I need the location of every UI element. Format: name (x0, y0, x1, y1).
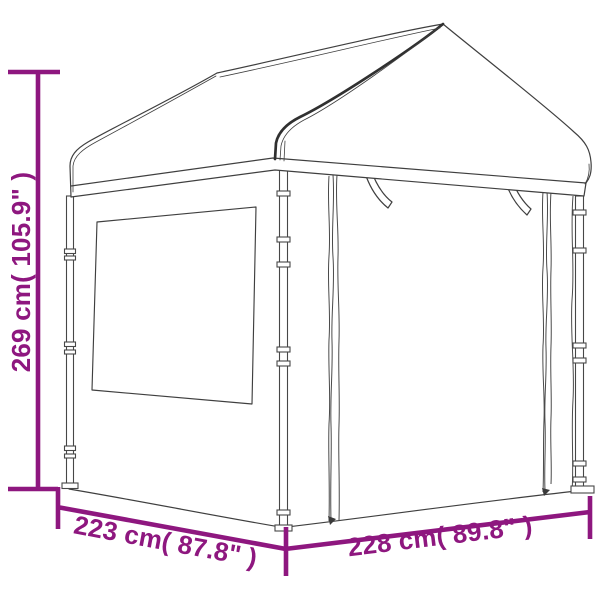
height-dimension: 269 cm( 105.9" ) (6, 72, 60, 489)
width-dimension-label: 228 cm( 89.8" ) (346, 510, 534, 562)
gazebo-diagram-canvas: 269 cm( 105.9" ) 223 cm( 87.8" ) 228 cm(… (0, 0, 600, 600)
product-dimension-diagram: 269 cm( 105.9" ) 223 cm( 87.8" ) 228 cm(… (0, 0, 600, 600)
front-wall (278, 162, 586, 528)
pole-back-left-foot (62, 483, 78, 489)
pole-front-right-foot (571, 486, 594, 493)
height-dimension-label: 269 cm( 105.9" ) (6, 172, 36, 373)
gazebo-drawing (62, 24, 594, 531)
roof-canopy (70, 24, 591, 197)
pole-front-left-foot (275, 525, 292, 531)
